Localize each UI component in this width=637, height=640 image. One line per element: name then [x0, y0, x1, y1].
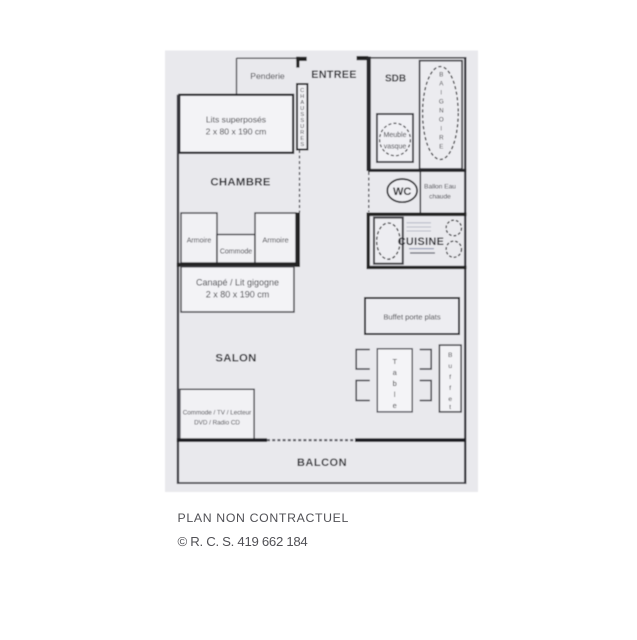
svg-text:G: G	[439, 99, 444, 106]
svg-text:SDB: SDB	[385, 74, 406, 85]
svg-text:Buffet porte plats: Buffet porte plats	[383, 313, 440, 322]
svg-text:R: R	[439, 135, 444, 142]
svg-text:CUISINE: CUISINE	[398, 236, 445, 248]
svg-text:e: e	[393, 401, 397, 410]
svg-text:Canapé / Lit gigogne: Canapé / Lit gigogne	[196, 278, 279, 288]
svg-text:chaude: chaude	[429, 194, 451, 201]
svg-text:2 x 80 x 190 cm: 2 x 80 x 190 cm	[206, 127, 267, 137]
svg-text:e: e	[448, 396, 452, 403]
svg-text:Commode / TV / Lecteur: Commode / TV / Lecteur	[183, 410, 251, 417]
svg-text:vasque: vasque	[384, 144, 407, 151]
svg-text:ENTREE: ENTREE	[311, 69, 357, 81]
svg-text:Ballon Eau: Ballon Eau	[424, 184, 456, 191]
svg-text:DVD / Radio CD: DVD / Radio CD	[194, 420, 240, 427]
svg-text:BALCON: BALCON	[297, 457, 347, 469]
svg-text:SALON: SALON	[215, 353, 256, 365]
svg-text:B: B	[448, 352, 453, 359]
svg-text:Penderie: Penderie	[250, 71, 285, 81]
svg-text:Armoire: Armoire	[262, 236, 288, 245]
svg-text:t: t	[449, 404, 451, 411]
svg-text:Commode: Commode	[220, 249, 252, 256]
svg-text:B: B	[439, 72, 443, 79]
svg-text:Armoire: Armoire	[187, 238, 212, 245]
svg-text:E: E	[439, 144, 443, 151]
svg-text:f: f	[449, 385, 451, 392]
svg-text:WC: WC	[393, 186, 411, 198]
svg-text:O: O	[439, 117, 444, 124]
svg-text:Lits superposés: Lits superposés	[206, 115, 266, 125]
svg-text:b: b	[393, 379, 397, 388]
svg-text:T: T	[392, 357, 397, 366]
svg-text:f: f	[449, 374, 451, 381]
svg-text:u: u	[448, 363, 452, 370]
svg-text:N: N	[439, 108, 443, 115]
svg-text:S: S	[300, 142, 304, 148]
svg-text:I: I	[440, 90, 442, 97]
svg-text:2 x 80 x 190 cm: 2 x 80 x 190 cm	[206, 290, 270, 300]
svg-text:CHAMBRE: CHAMBRE	[210, 177, 270, 189]
svg-text:Meuble: Meuble	[384, 132, 407, 139]
svg-text:I: I	[440, 126, 442, 133]
